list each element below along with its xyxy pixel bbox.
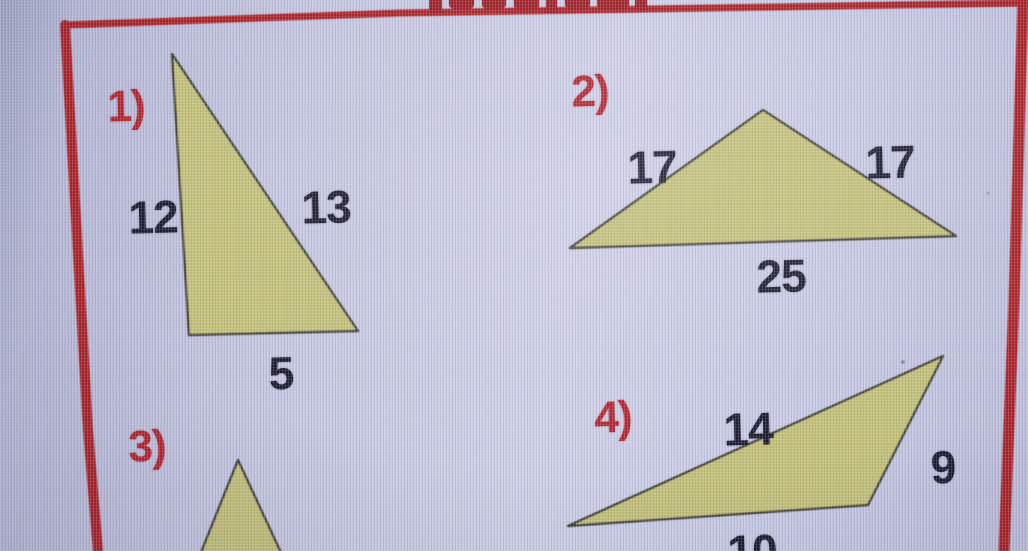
cropped-title-text [429,0,649,13]
problem-4-number: 4) [594,395,632,440]
problem-1-number: 1) [107,84,145,129]
worksheet-photo: 1) 12 13 5 2) 17 17 25 3) 4) 14 9 10 [0,0,1028,551]
problem-2-number: 2) [571,69,609,114]
problem-4-side-right: 9 [930,444,956,491]
frame-right-border [1004,0,1023,551]
problem-3-number: 3) [128,424,166,469]
problem-2-side-left: 17 [627,143,677,190]
frame-left-border [65,25,98,551]
problem-4-side-bottom: 10 [727,527,777,551]
problem-1-side-left: 12 [128,193,178,240]
dust-speck [901,360,905,364]
problem-1-side-right: 13 [301,183,351,230]
problem-1-side-bottom: 5 [268,350,294,397]
triangle-problem-3 [194,460,289,551]
problem-2-side-right: 17 [865,138,915,185]
dust-speck [987,192,990,195]
problem-4-side-top: 14 [723,405,773,452]
problem-2-side-bottom: 25 [756,252,806,299]
